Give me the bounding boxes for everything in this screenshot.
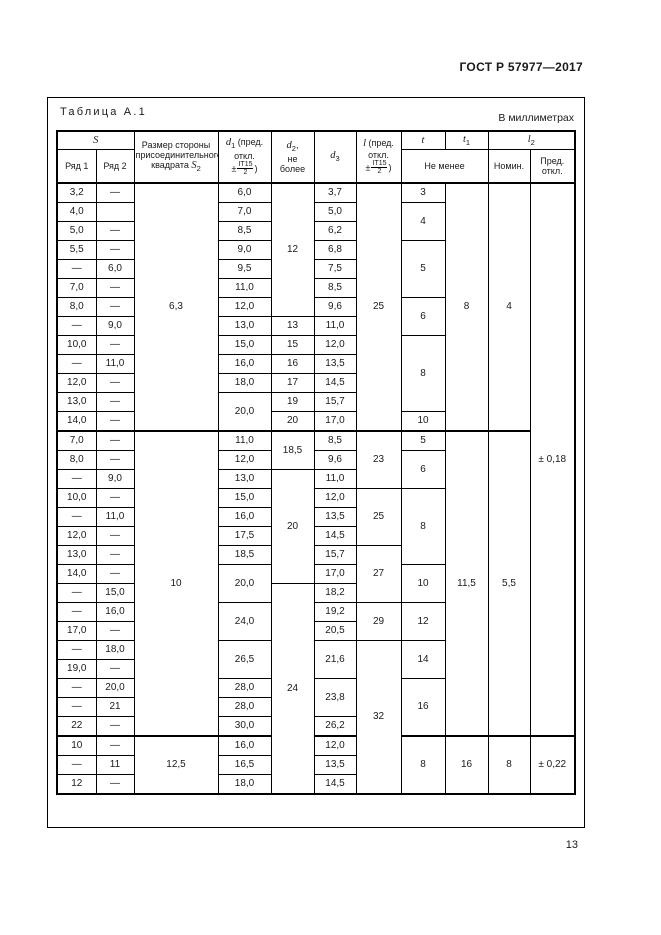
table-cell: 19,2	[314, 603, 356, 622]
table-cell: —	[96, 298, 134, 317]
table-cell: 14,0	[57, 565, 96, 584]
table-cell: 20,0	[218, 565, 271, 603]
table-cell: 19,0	[57, 660, 96, 679]
table-cell: 14,5	[314, 527, 356, 546]
table-cell: 17	[271, 374, 314, 393]
table-cell: 11,0	[218, 279, 271, 298]
table-cell: —	[96, 279, 134, 298]
table-cell: 25	[356, 489, 401, 546]
column-header-ryad1: Ряд 1	[57, 150, 96, 184]
table-cell: 27	[356, 546, 401, 603]
table-cell: 11,5	[445, 431, 488, 736]
table-cell: —	[96, 183, 134, 203]
table-cell: 16,5	[218, 756, 271, 775]
table-cell: 8	[401, 336, 445, 412]
table-cell: 15,7	[314, 393, 356, 412]
table-cell: 25	[356, 183, 401, 431]
table-cell: 18,0	[96, 641, 134, 660]
table-cell: 13,0	[57, 393, 96, 412]
table-cell: 13,5	[314, 355, 356, 374]
table-cell: 5,5	[57, 241, 96, 260]
table-cell: 13,0	[218, 317, 271, 336]
table-cell: —	[96, 241, 134, 260]
table-cell: 16	[401, 679, 445, 737]
units-label: В миллиметрах	[498, 112, 574, 124]
table-body: 3,2—6,36,0123,725384± 0,184,07,05,045,0—…	[57, 183, 575, 794]
table-cell: 11	[96, 756, 134, 775]
table-cell: —	[96, 660, 134, 679]
table-cell: 3,2	[57, 183, 96, 203]
table-cell: —	[96, 374, 134, 393]
table-cell: —	[96, 222, 134, 241]
table-cell: 16	[271, 355, 314, 374]
table-cell: —	[96, 717, 134, 737]
table-row: 10—12,516,012,08168± 0,22	[57, 736, 575, 756]
column-header-d2: d2, не более	[271, 131, 314, 183]
table-cell: 16,0	[218, 508, 271, 527]
table-cell: —	[96, 451, 134, 470]
table-cell: 9,0	[96, 470, 134, 489]
table-header: S Размер стороны присоединительного квад…	[57, 131, 575, 183]
table-cell: —	[57, 698, 96, 717]
table-cell: —	[57, 756, 96, 775]
table-cell: 6	[401, 451, 445, 489]
table-cell: 10,0	[57, 489, 96, 508]
table-cell: 8	[488, 736, 530, 794]
table-cell: —	[96, 546, 134, 565]
table-cell: —	[96, 775, 134, 795]
table-cell: —	[96, 736, 134, 756]
table-cell: 5,5	[488, 431, 530, 736]
table-cell: 14,5	[314, 775, 356, 795]
table-cell: 20,0	[218, 393, 271, 432]
table-cell: 8,0	[57, 451, 96, 470]
column-header-t: t	[401, 131, 445, 150]
table-cell: —	[57, 260, 96, 279]
column-header-s2: Размер стороны присоединительного квадра…	[134, 131, 218, 183]
table-cell: 24,0	[218, 603, 271, 641]
table-cell: 9,0	[96, 317, 134, 336]
table-cell: ± 0,22	[530, 736, 575, 794]
column-header-t1: t1	[445, 131, 488, 150]
table-cell: 23,8	[314, 679, 356, 717]
column-header-ne-menee: Не менее	[401, 150, 488, 184]
table-cell: 11,0	[218, 431, 271, 451]
table-cell: 10	[134, 431, 218, 736]
table-cell: 6,0	[96, 260, 134, 279]
table-cell: 18,5	[271, 431, 314, 470]
table-cell: 18,2	[314, 584, 356, 603]
table-cell: —	[57, 641, 96, 660]
table-row: 7,0—1011,018,58,523511,55,5	[57, 431, 575, 451]
table-cell: 15,0	[218, 489, 271, 508]
table-cell: 12,0	[57, 527, 96, 546]
table-cell: 12	[401, 603, 445, 641]
table-cell: —	[57, 603, 96, 622]
table-cell: 13,0	[57, 546, 96, 565]
table-cell: 8	[401, 736, 445, 794]
table-cell: 14,5	[314, 374, 356, 393]
table-cell: 12,0	[314, 336, 356, 355]
table-cell: ± 0,18	[530, 183, 575, 736]
table-cell: —	[57, 584, 96, 603]
table-cell: 7,0	[57, 431, 96, 451]
table-cell: 6	[401, 298, 445, 336]
table-cell: 28,0	[218, 679, 271, 698]
table-cell: 5	[401, 241, 445, 298]
table-cell: 12	[271, 183, 314, 317]
table-cell: 4	[401, 203, 445, 241]
table-cell: 12,0	[218, 451, 271, 470]
table-cell: 16,0	[218, 736, 271, 756]
table-cell: 13	[271, 317, 314, 336]
table-cell: 13,5	[314, 756, 356, 775]
table-cell: 15	[271, 336, 314, 355]
column-header-pred-otkl: Пред. откл.	[530, 150, 575, 184]
table-cell: 13,5	[314, 508, 356, 527]
table-cell: 18,5	[218, 546, 271, 565]
column-header-s: S	[57, 131, 134, 150]
column-header-ryad2: Ряд 2	[96, 150, 134, 184]
table-cell: 5,0	[57, 222, 96, 241]
table-cell: 17,0	[57, 622, 96, 641]
table-cell: 20	[271, 412, 314, 432]
table-cell: —	[96, 431, 134, 451]
table-row: 3,2—6,36,0123,725384± 0,18	[57, 183, 575, 203]
table-cell: 4	[488, 183, 530, 431]
table-cell: 16,0	[218, 355, 271, 374]
table-cell: —	[57, 508, 96, 527]
table-cell: 4,0	[57, 203, 96, 222]
table-cell: 8	[445, 183, 488, 431]
column-header-d3: d3	[314, 131, 356, 183]
table-cell: 12,0	[218, 298, 271, 317]
table-cell: 12	[57, 775, 96, 795]
document-page: ГОСТ Р 57977—2017 Таблица А.1 В миллимет…	[0, 0, 661, 935]
table-cell: 15,0	[218, 336, 271, 355]
table-cell: 14,0	[57, 412, 96, 432]
table-cell: 9,5	[218, 260, 271, 279]
table-cell: —	[57, 679, 96, 698]
table-cell: —	[96, 412, 134, 432]
table-cell: 21	[96, 698, 134, 717]
table-cell: 10	[57, 736, 96, 756]
table-cell: 17,5	[218, 527, 271, 546]
table-cell: 18,0	[218, 374, 271, 393]
table-cell: 7,0	[218, 203, 271, 222]
column-header-l2: l2	[488, 131, 575, 150]
table-cell: —	[57, 317, 96, 336]
page-number: 13	[566, 839, 578, 851]
table-cell: 12,0	[314, 736, 356, 756]
table-cell: 20	[271, 470, 314, 584]
table-cell: 3,7	[314, 183, 356, 203]
table-caption: Таблица А.1	[60, 106, 147, 118]
table-cell: 12,0	[314, 489, 356, 508]
standard-number: ГОСТ Р 57977—2017	[459, 60, 583, 74]
table-cell: 28,0	[218, 698, 271, 717]
table-cell: 10	[401, 412, 445, 432]
table-cell: 30,0	[218, 717, 271, 737]
table-cell: 12,0	[57, 374, 96, 393]
table-cell: 26,2	[314, 717, 356, 737]
table-cell: 8	[401, 489, 445, 565]
table-cell: 9,6	[314, 451, 356, 470]
table-cell: 19	[271, 393, 314, 412]
table-cell: 20,0	[96, 679, 134, 698]
table-cell: 11,0	[314, 470, 356, 489]
table-cell: 11,0	[96, 355, 134, 374]
table-cell: 7,0	[57, 279, 96, 298]
table-cell: 13,0	[218, 470, 271, 489]
table-cell: 8,0	[57, 298, 96, 317]
table-cell: 11,0	[96, 508, 134, 527]
dimension-table: S Размер стороны присоединительного квад…	[56, 130, 576, 795]
table-cell: 6,8	[314, 241, 356, 260]
table-cell: 17,0	[314, 412, 356, 432]
column-header-nomin: Номин.	[488, 150, 530, 184]
table-cell: 15,7	[314, 546, 356, 565]
table-cell: 5,0	[314, 203, 356, 222]
table-cell: 8,5	[218, 222, 271, 241]
table-cell: 6,0	[218, 183, 271, 203]
table-cell: 32	[356, 641, 401, 795]
table-cell: —	[96, 622, 134, 641]
table-cell: 6,3	[134, 183, 218, 431]
table-cell: 21,6	[314, 641, 356, 679]
table-cell: 12,5	[134, 736, 218, 794]
table-cell: 14	[401, 641, 445, 679]
table-cell: 29	[356, 603, 401, 641]
table-cell: 24	[271, 584, 314, 795]
table-cell: 6,2	[314, 222, 356, 241]
table-cell: 8,5	[314, 431, 356, 451]
table-cell: 11,0	[314, 317, 356, 336]
table-cell: 10,0	[57, 336, 96, 355]
table-cell: —	[57, 470, 96, 489]
table-cell: 20,5	[314, 622, 356, 641]
table-cell: —	[96, 489, 134, 508]
table-cell: 16,0	[96, 603, 134, 622]
table-cell: 5	[401, 431, 445, 451]
table-cell: —	[57, 355, 96, 374]
table-cell: 9,0	[218, 241, 271, 260]
table-cell	[96, 203, 134, 222]
table-cell: 9,6	[314, 298, 356, 317]
table-cell: —	[96, 336, 134, 355]
table-cell: 18,0	[218, 775, 271, 795]
table-cell: 26,5	[218, 641, 271, 679]
table-cell: 10	[401, 565, 445, 603]
table-cell: 16	[445, 736, 488, 794]
table-cell: 15,0	[96, 584, 134, 603]
table-cell: —	[96, 527, 134, 546]
table-cell: 7,5	[314, 260, 356, 279]
table-cell: 3	[401, 183, 445, 203]
table-cell: 22	[57, 717, 96, 737]
table-cell: 23	[356, 431, 401, 489]
table-cell: —	[96, 565, 134, 584]
column-header-l: l (пред. откл. ±IT152)	[356, 131, 401, 183]
table-cell: —	[96, 393, 134, 412]
column-header-d1: d1 (пред. откл. ±IT152)	[218, 131, 271, 183]
table-cell: 17,0	[314, 565, 356, 584]
table-cell: 8,5	[314, 279, 356, 298]
